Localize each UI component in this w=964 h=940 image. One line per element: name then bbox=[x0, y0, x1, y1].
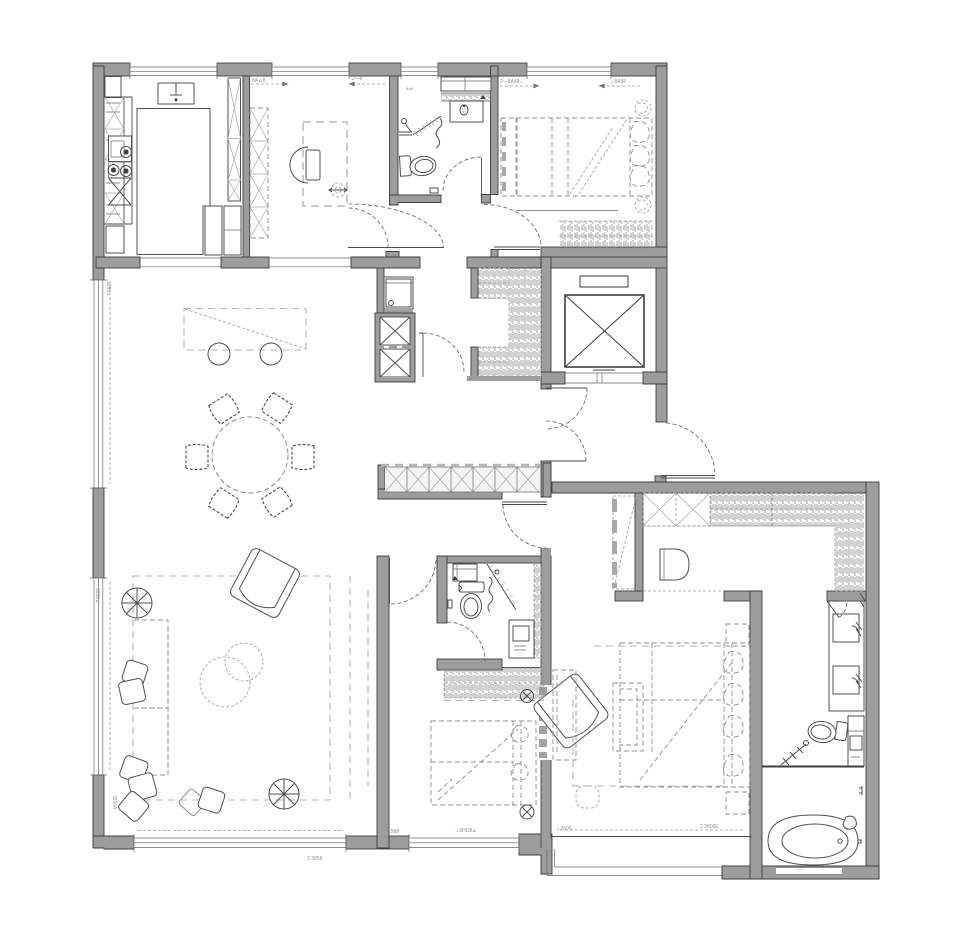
svg-text:2—8: 2—8 bbox=[352, 76, 363, 82]
svg-text:2 3858: 2 3858 bbox=[307, 856, 323, 862]
svg-text:⊥3HO8∠: ⊥3HO8∠ bbox=[455, 828, 477, 834]
svg-text:38358: 38358 bbox=[111, 795, 117, 809]
svg-text:8A8: 8A8 bbox=[406, 86, 414, 91]
svg-text:8A∠8: 8A∠8 bbox=[252, 78, 266, 84]
svg-text:⊥2600: ⊥2600 bbox=[556, 826, 572, 832]
svg-text:240: 240 bbox=[461, 108, 466, 115]
svg-text:3858∠: 3858∠ bbox=[94, 588, 100, 604]
svg-text:3958⊥: 3958⊥ bbox=[105, 281, 111, 296]
svg-text:2—8A88⊥: 2—8A88⊥ bbox=[500, 79, 524, 85]
svg-text:2 3608E: 2 3608E bbox=[700, 824, 719, 830]
svg-text:⊥8A88: ⊥8A88 bbox=[610, 79, 626, 85]
svg-text:1588: 1588 bbox=[388, 829, 399, 835]
